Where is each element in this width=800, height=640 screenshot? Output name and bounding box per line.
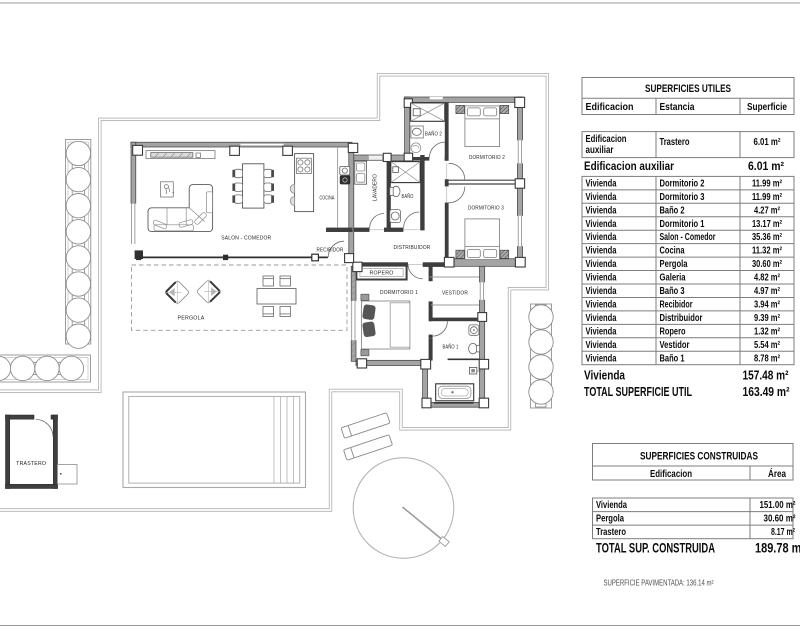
svg-text:Edificacion: Edificacion — [586, 101, 634, 113]
svg-text:Área: Área — [768, 467, 786, 480]
svg-text:Vivienda: Vivienda — [596, 500, 627, 511]
svg-text:11.32 m²: 11.32 m² — [752, 246, 783, 257]
svg-text:Dormitorio 3: Dormitorio 3 — [660, 192, 705, 203]
svg-text:BAÑO 2: BAÑO 2 — [425, 131, 442, 138]
svg-text:4.27 m²: 4.27 m² — [754, 205, 781, 216]
svg-text:DORMITORIO 3: DORMITORIO 3 — [468, 206, 504, 212]
svg-text:Vivienda: Vivienda — [586, 286, 617, 297]
svg-text:auxiliar: auxiliar — [586, 145, 614, 156]
svg-text:189.78 m²: 189.78 m² — [755, 541, 800, 556]
svg-text:Edificacion auxiliar: Edificacion auxiliar — [584, 159, 674, 173]
svg-text:Vivienda: Vivienda — [586, 340, 617, 351]
svg-text:157.48 m²: 157.48 m² — [743, 368, 790, 383]
svg-text:Trastero: Trastero — [660, 137, 690, 148]
svg-text:PERGOLA: PERGOLA — [178, 316, 205, 322]
svg-text:LAVADERO: LAVADERO — [373, 174, 379, 201]
svg-text:4.97 m²: 4.97 m² — [754, 286, 781, 297]
svg-text:Dormitorio 2: Dormitorio 2 — [660, 178, 705, 189]
svg-text:Vivienda: Vivienda — [586, 326, 617, 337]
svg-text:30.60 m²: 30.60 m² — [764, 514, 797, 525]
svg-text:Pergola: Pergola — [596, 514, 624, 525]
svg-text:Ropero: Ropero — [660, 326, 686, 337]
svg-text:Vivienda: Vivienda — [586, 273, 617, 284]
svg-text:Vestidor: Vestidor — [660, 340, 690, 351]
svg-text:TOTAL SUPERFICIE UTIL: TOTAL SUPERFICIE UTIL — [584, 384, 692, 399]
svg-text:6.01 m²: 6.01 m² — [754, 137, 782, 148]
svg-text:163.49 m²: 163.49 m² — [743, 384, 791, 399]
svg-text:11.99 m²: 11.99 m² — [752, 192, 783, 203]
svg-text:11.99 m²: 11.99 m² — [752, 178, 783, 189]
svg-text:8.78 m²: 8.78 m² — [754, 353, 781, 364]
svg-text:BAÑO: BAÑO — [402, 193, 414, 200]
svg-text:Vivienda: Vivienda — [586, 178, 617, 189]
svg-text:8.17 m²: 8.17 m² — [771, 527, 796, 538]
svg-text:Vivienda: Vivienda — [586, 205, 617, 216]
svg-text:Estancia: Estancia — [660, 101, 695, 113]
svg-text:Cocina: Cocina — [660, 246, 685, 257]
svg-text:Edificacion: Edificacion — [586, 134, 627, 145]
svg-text:13.17 m²: 13.17 m² — [752, 219, 783, 230]
svg-text:Distribuidor: Distribuidor — [660, 313, 703, 324]
svg-text:Vivienda: Vivienda — [586, 232, 617, 243]
svg-text:4.82 m²: 4.82 m² — [754, 273, 781, 284]
svg-text:3.94 m²: 3.94 m² — [754, 299, 781, 310]
svg-text:Galeria: Galeria — [660, 273, 686, 284]
svg-text:Vivienda: Vivienda — [584, 368, 626, 383]
svg-text:SALON - COMEDOR: SALON - COMEDOR — [221, 236, 271, 242]
svg-text:DORMITORIO 1: DORMITORIO 1 — [380, 290, 418, 296]
svg-text:SUPERFICIES CONSTRUIDAS: SUPERFICIES CONSTRUIDAS — [640, 451, 758, 463]
svg-text:COCINA: COCINA — [320, 196, 335, 202]
svg-text:DORMITORIO 2: DORMITORIO 2 — [469, 155, 505, 161]
svg-text:Edificacion: Edificacion — [650, 468, 692, 480]
svg-text:Vivienda: Vivienda — [586, 353, 617, 364]
svg-text:Baño 3: Baño 3 — [660, 286, 685, 297]
svg-text:Baño 2: Baño 2 — [660, 205, 685, 216]
svg-text:5.54 m²: 5.54 m² — [754, 340, 781, 351]
svg-text:Dormitorio 1: Dormitorio 1 — [660, 219, 705, 230]
svg-text:TOTAL SUP. CONSTRUIDA: TOTAL SUP. CONSTRUIDA — [596, 541, 715, 556]
svg-text:1.32 m²: 1.32 m² — [754, 326, 781, 337]
svg-text:Superficie: Superficie — [747, 101, 787, 113]
svg-text:Recibidor: Recibidor — [660, 299, 693, 310]
svg-text:RECIBIDOR: RECIBIDOR — [317, 248, 344, 254]
svg-text:SUPERFICIES UTILES: SUPERFICIES UTILES — [645, 83, 731, 95]
svg-text:VESTIDOR: VESTIDOR — [442, 290, 468, 296]
svg-text:Vivienda: Vivienda — [586, 219, 617, 230]
svg-text:Vivienda: Vivienda — [586, 246, 617, 257]
svg-text:6.01 m²: 6.01 m² — [748, 159, 784, 173]
svg-text:Salon - Comedor: Salon - Comedor — [660, 232, 716, 243]
svg-text:9.39 m²: 9.39 m² — [754, 313, 781, 324]
svg-text:Vivienda: Vivienda — [586, 259, 617, 270]
svg-text:BAÑO 1: BAÑO 1 — [443, 344, 459, 351]
svg-text:SUPERFICIE PAVIMENTADA: 136.14: SUPERFICIE PAVIMENTADA: 136.14 m² — [604, 579, 714, 588]
svg-text:ROPERO: ROPERO — [370, 270, 394, 276]
svg-text:Vivienda: Vivienda — [586, 313, 617, 324]
svg-text:TRASTERO: TRASTERO — [16, 461, 46, 467]
svg-text:151.00 m²: 151.00 m² — [760, 500, 797, 511]
svg-text:Vivienda: Vivienda — [586, 299, 617, 310]
svg-text:35.36 m²: 35.36 m² — [752, 232, 783, 243]
svg-text:Pergola: Pergola — [660, 259, 688, 270]
svg-text:Baño 1: Baño 1 — [660, 353, 685, 364]
svg-text:DISTRIBUIDOR: DISTRIBUIDOR — [394, 245, 431, 251]
svg-text:Trastero: Trastero — [596, 527, 626, 538]
svg-text:30.60 m²: 30.60 m² — [752, 259, 783, 270]
svg-text:Vivienda: Vivienda — [586, 192, 617, 203]
